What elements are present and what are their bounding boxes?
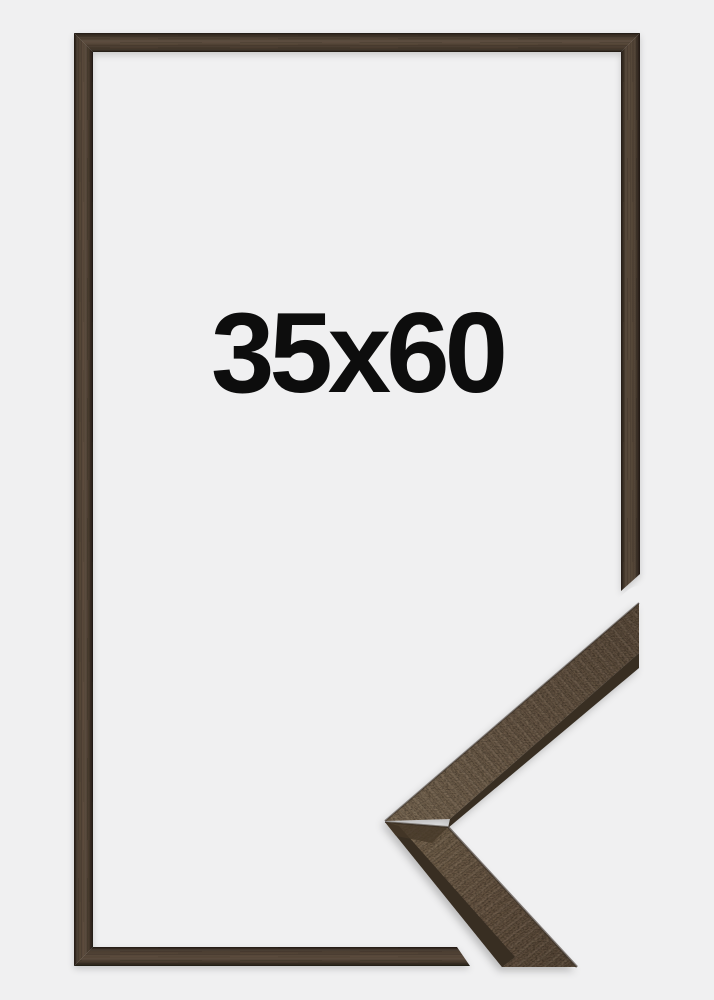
frame-bar-left bbox=[74, 33, 93, 966]
frame-product-image: 35x60 bbox=[0, 0, 714, 1000]
size-label: 35x60 bbox=[0, 297, 714, 411]
frame-bar-bottom bbox=[74, 947, 470, 966]
image-background bbox=[0, 0, 714, 1000]
frame-bar-top bbox=[74, 33, 640, 52]
frame-product-graphic bbox=[0, 0, 714, 1000]
